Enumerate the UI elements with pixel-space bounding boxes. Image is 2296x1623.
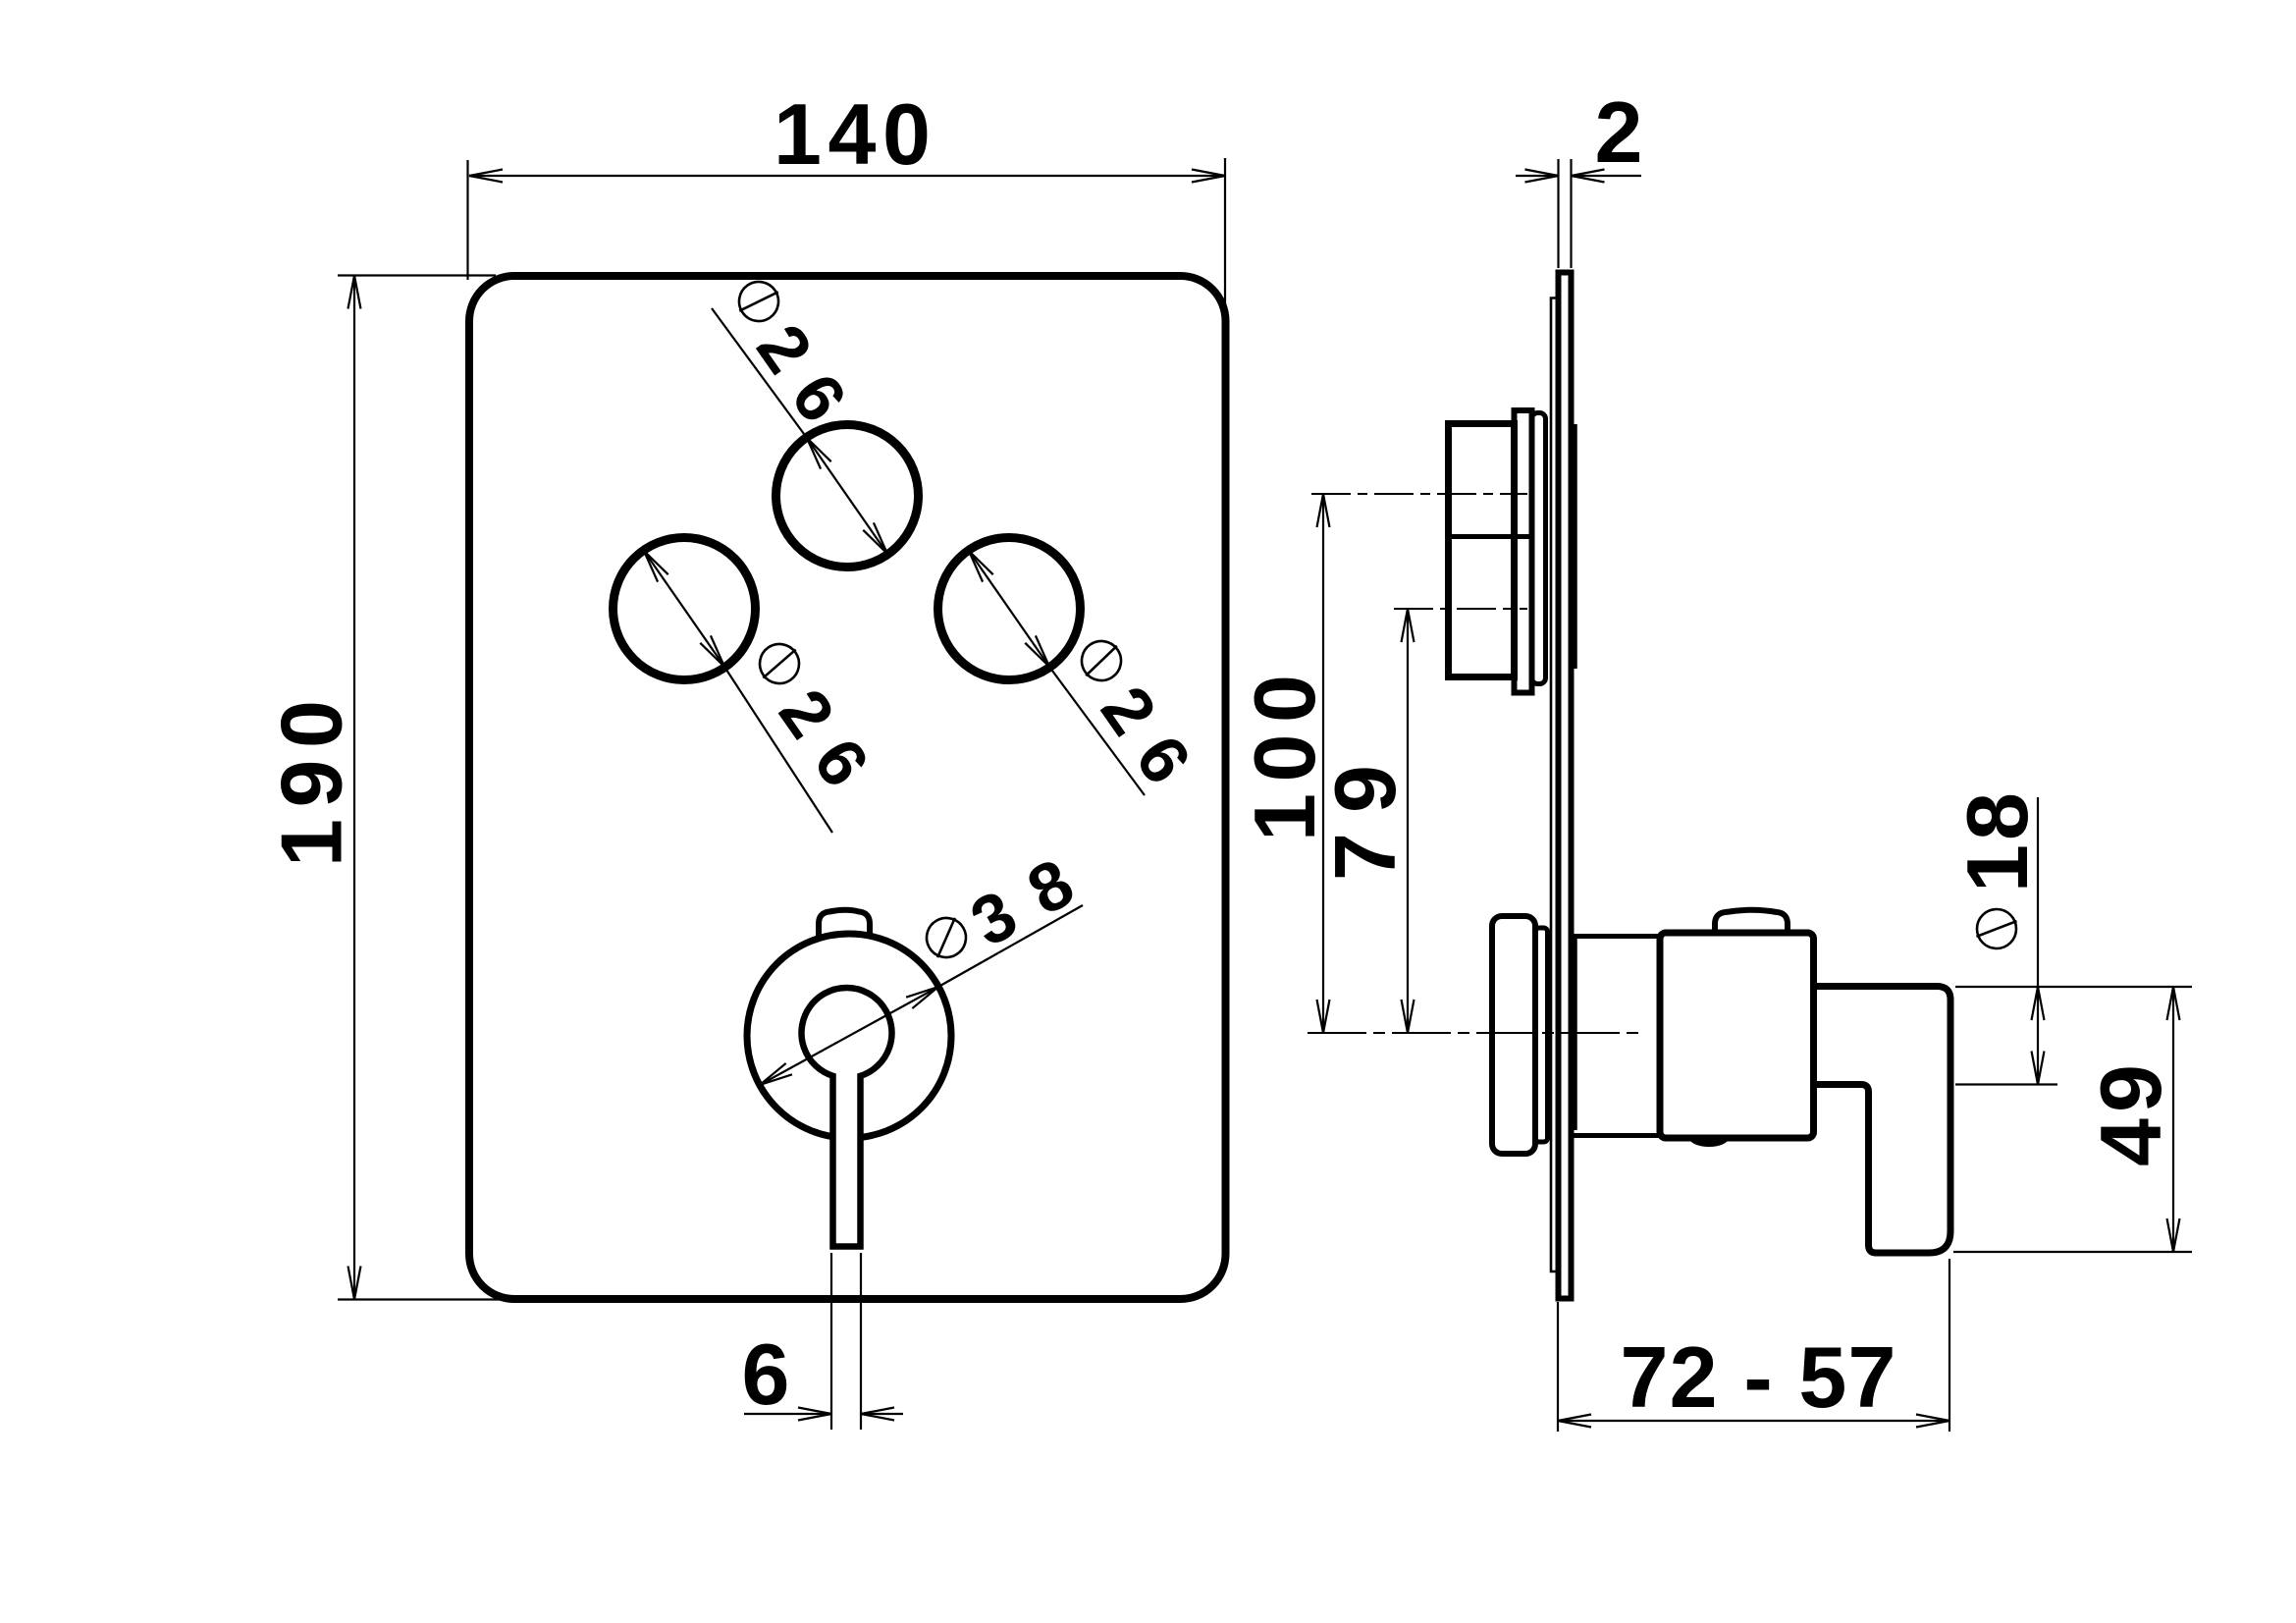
svg-text:100: 100 <box>1236 675 1333 841</box>
svg-text:140: 140 <box>774 85 931 183</box>
svg-text:72 - 57: 72 - 57 <box>1621 1328 1896 1426</box>
svg-text:190: 190 <box>263 700 360 867</box>
svg-text:2: 2 <box>1595 83 1643 181</box>
svg-text:6: 6 <box>742 1325 790 1423</box>
